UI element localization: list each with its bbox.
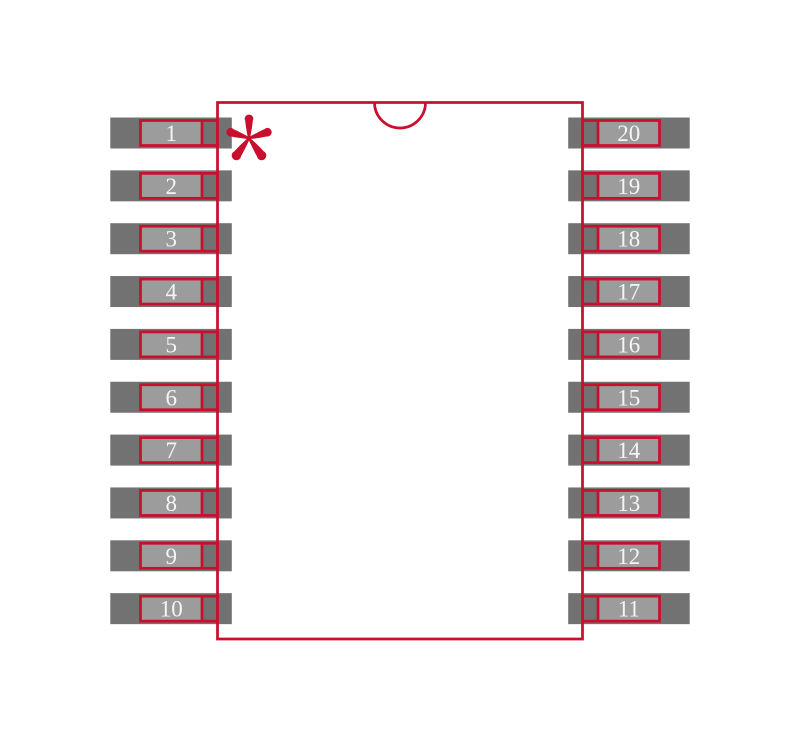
svg-text:1: 1 [165,121,177,146]
svg-text:3: 3 [165,227,177,252]
svg-text:16: 16 [617,332,640,357]
svg-text:9: 9 [165,544,177,569]
svg-text:7: 7 [165,438,177,463]
svg-text:14: 14 [617,438,641,463]
svg-text:2: 2 [165,174,177,199]
svg-text:20: 20 [617,121,640,146]
svg-text:5: 5 [165,332,177,357]
svg-text:18: 18 [617,227,640,252]
svg-text:19: 19 [617,174,640,199]
svg-text:12: 12 [617,544,640,569]
svg-text:17: 17 [617,280,640,305]
svg-text:6: 6 [165,385,177,410]
svg-text:8: 8 [165,491,177,516]
svg-text:13: 13 [617,491,640,516]
svg-text:11: 11 [618,597,640,622]
svg-text:10: 10 [160,597,183,622]
svg-text:4: 4 [165,280,177,305]
svg-text:15: 15 [617,385,640,410]
